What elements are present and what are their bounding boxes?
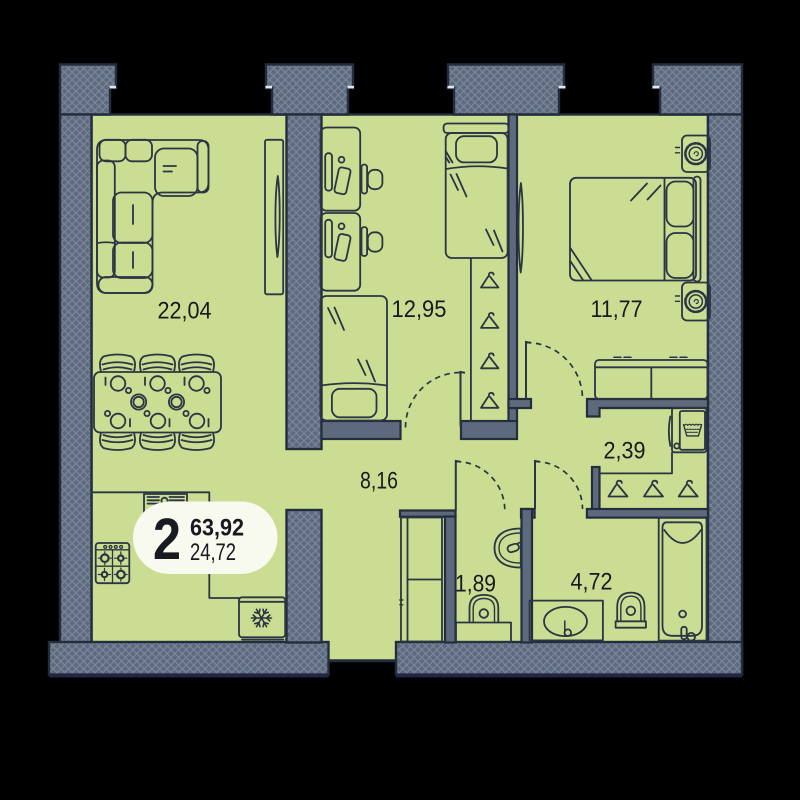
- svg-text:4,72: 4,72: [571, 569, 613, 596]
- svg-text:12,95: 12,95: [392, 296, 447, 323]
- svg-text:1,89: 1,89: [455, 571, 496, 598]
- svg-text:2,39: 2,39: [604, 438, 646, 465]
- svg-text:24,72: 24,72: [190, 539, 236, 566]
- svg-text:11,77: 11,77: [591, 296, 643, 323]
- svg-text:8,16: 8,16: [360, 468, 398, 495]
- svg-text:2: 2: [153, 507, 181, 572]
- svg-text:22,04: 22,04: [158, 297, 212, 324]
- svg-text:63,92: 63,92: [190, 515, 244, 542]
